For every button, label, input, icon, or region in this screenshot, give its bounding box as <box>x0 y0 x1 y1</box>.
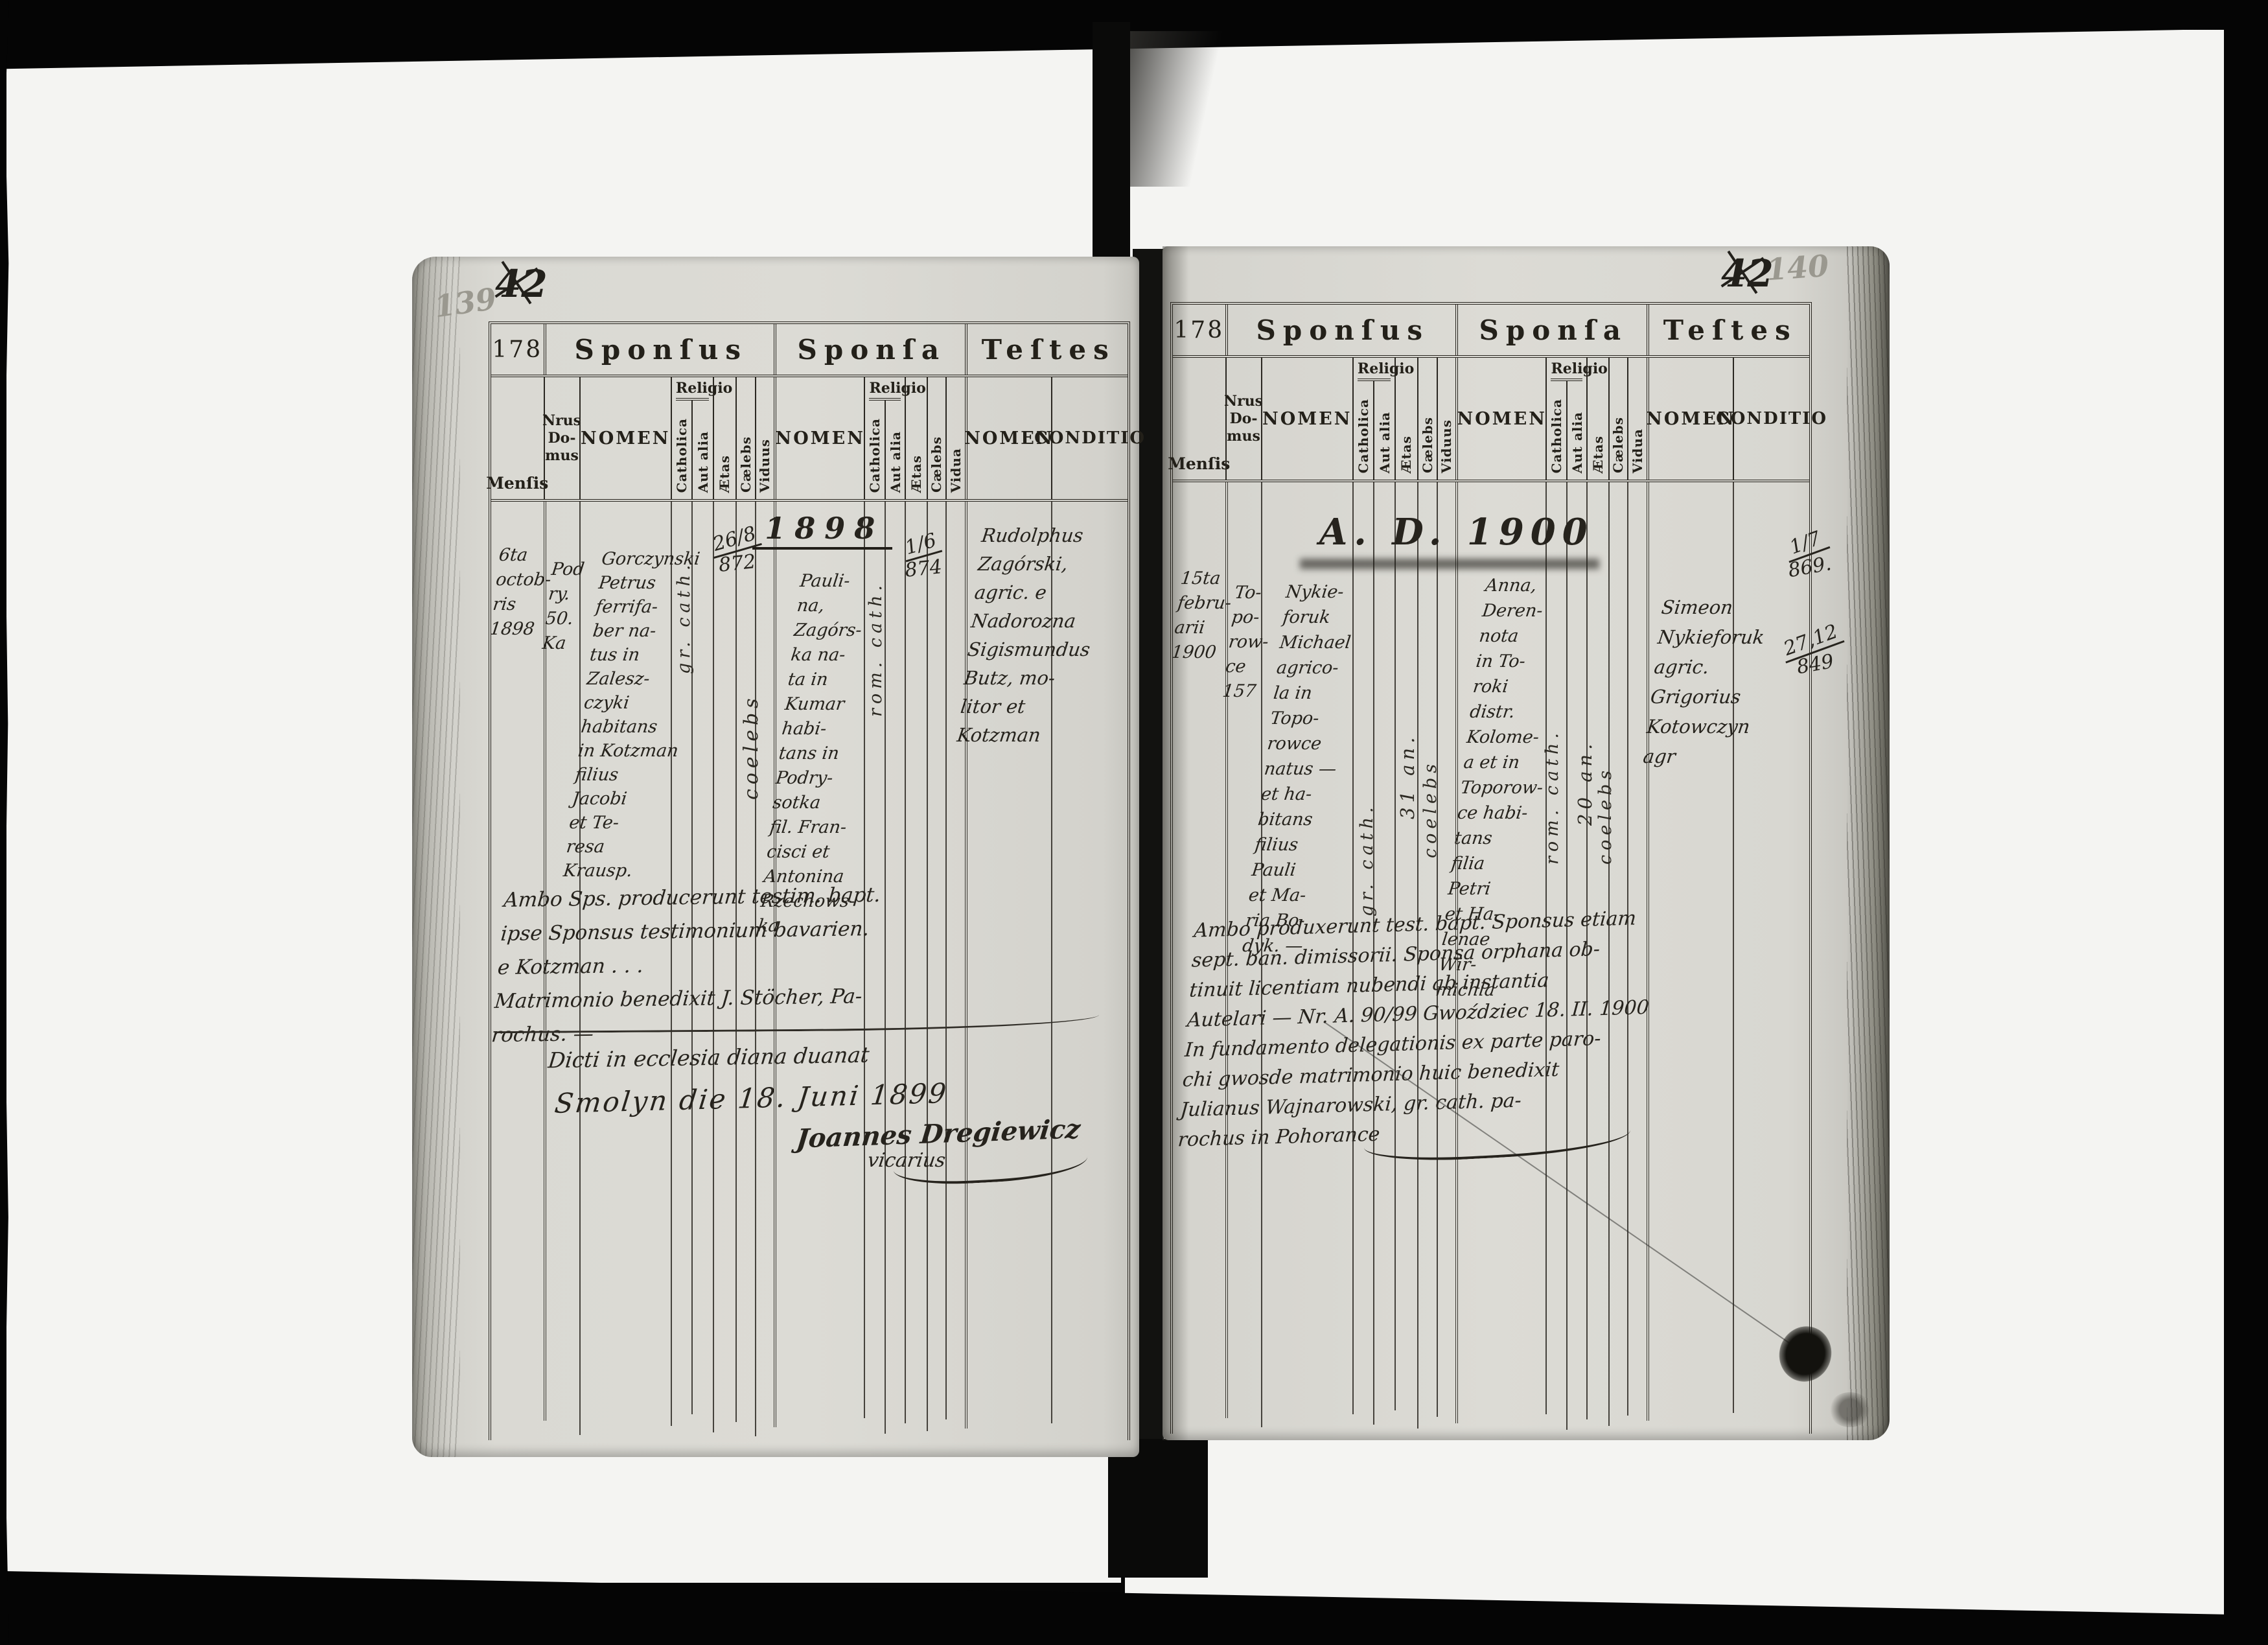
entry-mensis: 6taoctob-ris1898 <box>489 543 548 642</box>
column-religio-sponsa: Religio Catholica Aut alia <box>1545 358 1586 480</box>
entry-sponsus-status-note: coelebs <box>740 534 763 800</box>
section-sponsa: Sponſa <box>774 324 967 375</box>
register-table-right: 178 Sponſus Sponſa Teſtes Menſis NrusDo-… <box>1170 302 1812 1434</box>
page-left-worn-edge <box>412 257 460 1457</box>
form-number: 178 <box>491 324 544 375</box>
table-header-row-2: Menſis NrusDo-mus NOMEN Religio Catholic… <box>1173 358 1809 482</box>
folio-number-ink-left: 42 <box>495 262 548 306</box>
signature-block: Joannes Dregiewicz vicarius <box>796 1119 1080 1172</box>
register-page-left: 139 42 178 Sponſus Sponſa Teſtes Menſis … <box>412 257 1139 1457</box>
column-caelebs-sponsus: Cælebs <box>738 436 754 493</box>
entry-mensis: 15tafebru-arii1900 <box>1170 566 1230 665</box>
column-religio-sponsa: Religio Catholica Aut alia <box>864 377 905 499</box>
rule-line <box>927 502 928 1431</box>
book-gutter-top <box>1093 22 1130 266</box>
entry-sponsa-aetas-note: 20 an. <box>1574 690 1596 826</box>
column-catholica: Catholica <box>1356 399 1371 473</box>
column-caelebs-sponsus: Cælebs <box>1420 417 1435 473</box>
column-aetas-sponsus: Ætas <box>717 455 732 493</box>
ink-smudge-line <box>1300 559 1599 569</box>
book-gutter-bottom <box>1108 1439 1208 1578</box>
column-aut-alia: Aut alia <box>1377 412 1393 473</box>
marginal-note: Ambo produxerunt test. bapt. Sponsus eti… <box>1177 904 1657 1156</box>
folio-number-pencil-right: 140 <box>1765 248 1830 288</box>
column-catholica: Catholica <box>1549 399 1564 473</box>
religio-label: Religio <box>1551 360 1582 381</box>
column-aut-alia: Aut alia <box>888 431 903 493</box>
column-nomen-sponsa: NOMEN <box>1457 409 1547 429</box>
column-nomen-sponsus: NOMEN <box>1262 409 1352 429</box>
entry-sponsa-aetas: 1/6874 <box>901 531 944 582</box>
register-table-left: 178 Sponſus Sponſa Teſtes Menſis NrusDo-… <box>489 321 1130 1440</box>
entry-sponsa-religio-note: rom. cath. <box>1542 644 1562 865</box>
book-gutter-shadow <box>1130 31 1234 187</box>
column-mensis: Menſis <box>486 474 548 493</box>
column-vidua-sponsa: Vidua <box>1630 428 1645 473</box>
rule-line <box>905 502 906 1423</box>
column-vidua-sponsa: Vidua <box>948 448 964 493</box>
column-aetas-sponsa: Ætas <box>908 455 924 493</box>
religio-label: Religio <box>869 380 901 401</box>
column-conditio: CONDITIO <box>1034 428 1146 448</box>
section-sponsus: Sponſus <box>1225 305 1458 355</box>
entry-sponsus-religio-note: gr. cath. <box>1357 638 1377 916</box>
column-nomen-sponsa: NOMEN <box>776 428 865 449</box>
column-nrus-domus: NrusDo-mus <box>1224 393 1263 445</box>
rule-line <box>945 502 947 1419</box>
ink-blot-faint <box>1829 1392 1871 1427</box>
margin-date-note-1: 1/7869. <box>1782 528 1833 582</box>
column-religio-sponsus: Religio Catholica Aut alia <box>1352 358 1394 480</box>
year-heading-1898: 1898 <box>765 511 884 546</box>
column-religio-sponsus: Religio Catholica Aut alia <box>671 377 713 499</box>
column-aetas-sponsa: Ætas <box>1590 436 1606 473</box>
table-header-row-1: 178 Sponſus Sponſa Teſtes <box>491 324 1128 377</box>
scanner-bed-right <box>2224 0 2268 1645</box>
marginal-note-lower-2: Smolyn die 18. Juni 1899 <box>553 1077 949 1119</box>
table-header-row-1: 178 Sponſus Sponſa Teſtes <box>1173 305 1809 358</box>
column-nrus-domus: NrusDo-mus <box>542 412 581 465</box>
column-aetas-sponsus: Ætas <box>1398 436 1414 473</box>
section-testes: Teſtes <box>1647 305 1812 355</box>
section-sponsa: Sponſa <box>1455 305 1649 355</box>
freehand-divider-line <box>494 1009 1099 1034</box>
column-mensis: Menſis <box>1168 454 1230 473</box>
table-header-row-2: Menſis NrusDo-mus NOMEN Religio Catholic… <box>491 377 1128 502</box>
page-right-worn-edge <box>1847 246 1890 1440</box>
entry-testes-nomen: SimeonNykieforukagric.GrigoriusKotowczyn… <box>1641 592 1770 771</box>
column-viduus-sponsus: Viduus <box>757 439 772 493</box>
marginal-note-lower-1: Dicti in ecclesia diana duanat <box>547 1042 870 1073</box>
section-sponsus: Sponſus <box>544 324 776 375</box>
column-viduus-sponsus: Viduus <box>1439 419 1454 473</box>
entry-sponsus-religio-note: gr. cath. <box>674 544 694 674</box>
entry-sponsus-nomen: GorczynskiPetrusferrifa-ber na-tus inZal… <box>562 547 693 883</box>
religio-label: Religio <box>1358 360 1391 381</box>
entry-testes-nomen: RudolphusZagórski,agric. eNadoroznaSigis… <box>956 521 1106 749</box>
rule-line <box>965 502 967 1429</box>
year-heading-1900: A. D. 1900 <box>1319 511 1594 554</box>
table-body-left: 1898 6taoctob-ris1898 Podry.50.Ka Gorczy… <box>491 502 1128 1440</box>
entry-sponsa-religio-note: rom. cath. <box>866 542 886 717</box>
religio-label: Religio <box>676 380 709 401</box>
folio-ink-value: 42 <box>495 262 548 306</box>
margin-date-note-2: 27,12849 <box>1778 624 1847 681</box>
column-catholica: Catholica <box>674 418 689 493</box>
column-caelebs-sponsa: Cælebs <box>1610 417 1626 473</box>
column-caelebs-sponsa: Cælebs <box>929 436 944 493</box>
column-conditio: CONDITIO <box>1716 409 1827 428</box>
entry-sponsa-status-note: coelebs <box>1595 651 1615 865</box>
register-page-right: 42 140 178 Sponſus Sponſa Teſtes Menſis … <box>1163 246 1890 1440</box>
entry-sponsus-status-note: coelebs <box>1420 638 1441 858</box>
entry-sponsus-aetas-note: 31 an. <box>1396 670 1418 819</box>
column-catholica: Catholica <box>867 418 883 493</box>
scanned-register-spread: 139 42 178 Sponſus Sponſa Teſtes Menſis … <box>0 0 2268 1645</box>
form-number: 178 <box>1173 305 1225 355</box>
column-aut-alia: Aut alia <box>1569 412 1585 473</box>
column-nomen-sponsus: NOMEN <box>581 428 670 449</box>
section-testes: Teſtes <box>965 324 1130 375</box>
signature-name: Joannes Dregiewicz <box>795 1114 1082 1154</box>
column-aut-alia: Aut alia <box>695 431 711 493</box>
